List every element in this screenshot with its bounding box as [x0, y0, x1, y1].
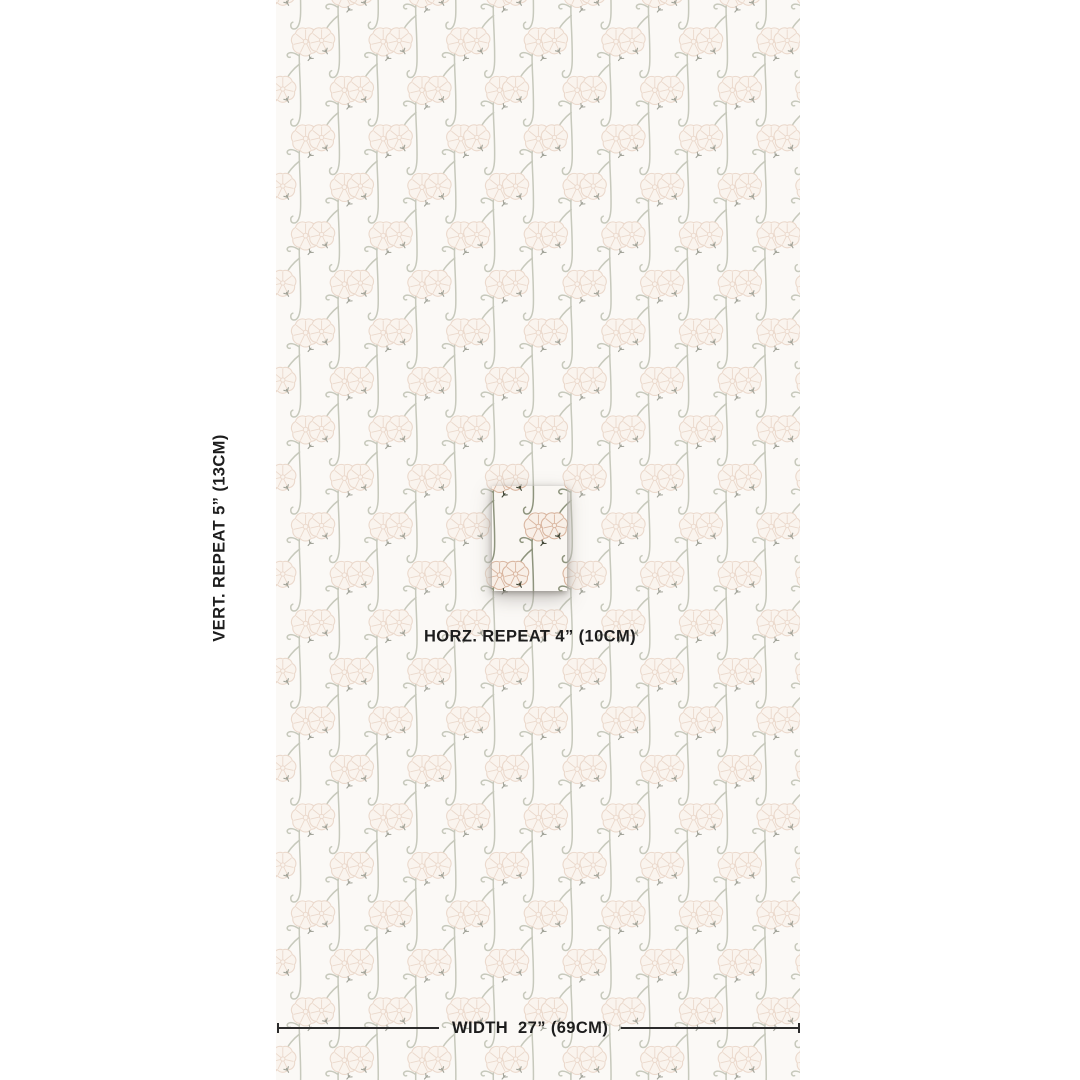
- horizontal-repeat-label: HORZ. REPEAT 4” (10CM): [424, 628, 636, 647]
- swatch-page: VERT. REPEAT 5” (13CM) HORZ. REPEAT 4” (…: [0, 0, 1080, 1080]
- width-label: WIDTH 27” (69CM): [439, 1019, 621, 1038]
- width-line-left-segment: [279, 1027, 439, 1029]
- vertical-repeat-label: VERT. REPEAT 5” (13CM): [211, 434, 230, 641]
- repeat-swatch-highlight: [492, 486, 567, 591]
- width-line-right-segment: [621, 1027, 798, 1029]
- width-line-right-tick: [798, 1023, 800, 1033]
- width-annotation: WIDTH 27” (69CM): [277, 1019, 800, 1037]
- repeat-swatch-pattern: [492, 486, 567, 591]
